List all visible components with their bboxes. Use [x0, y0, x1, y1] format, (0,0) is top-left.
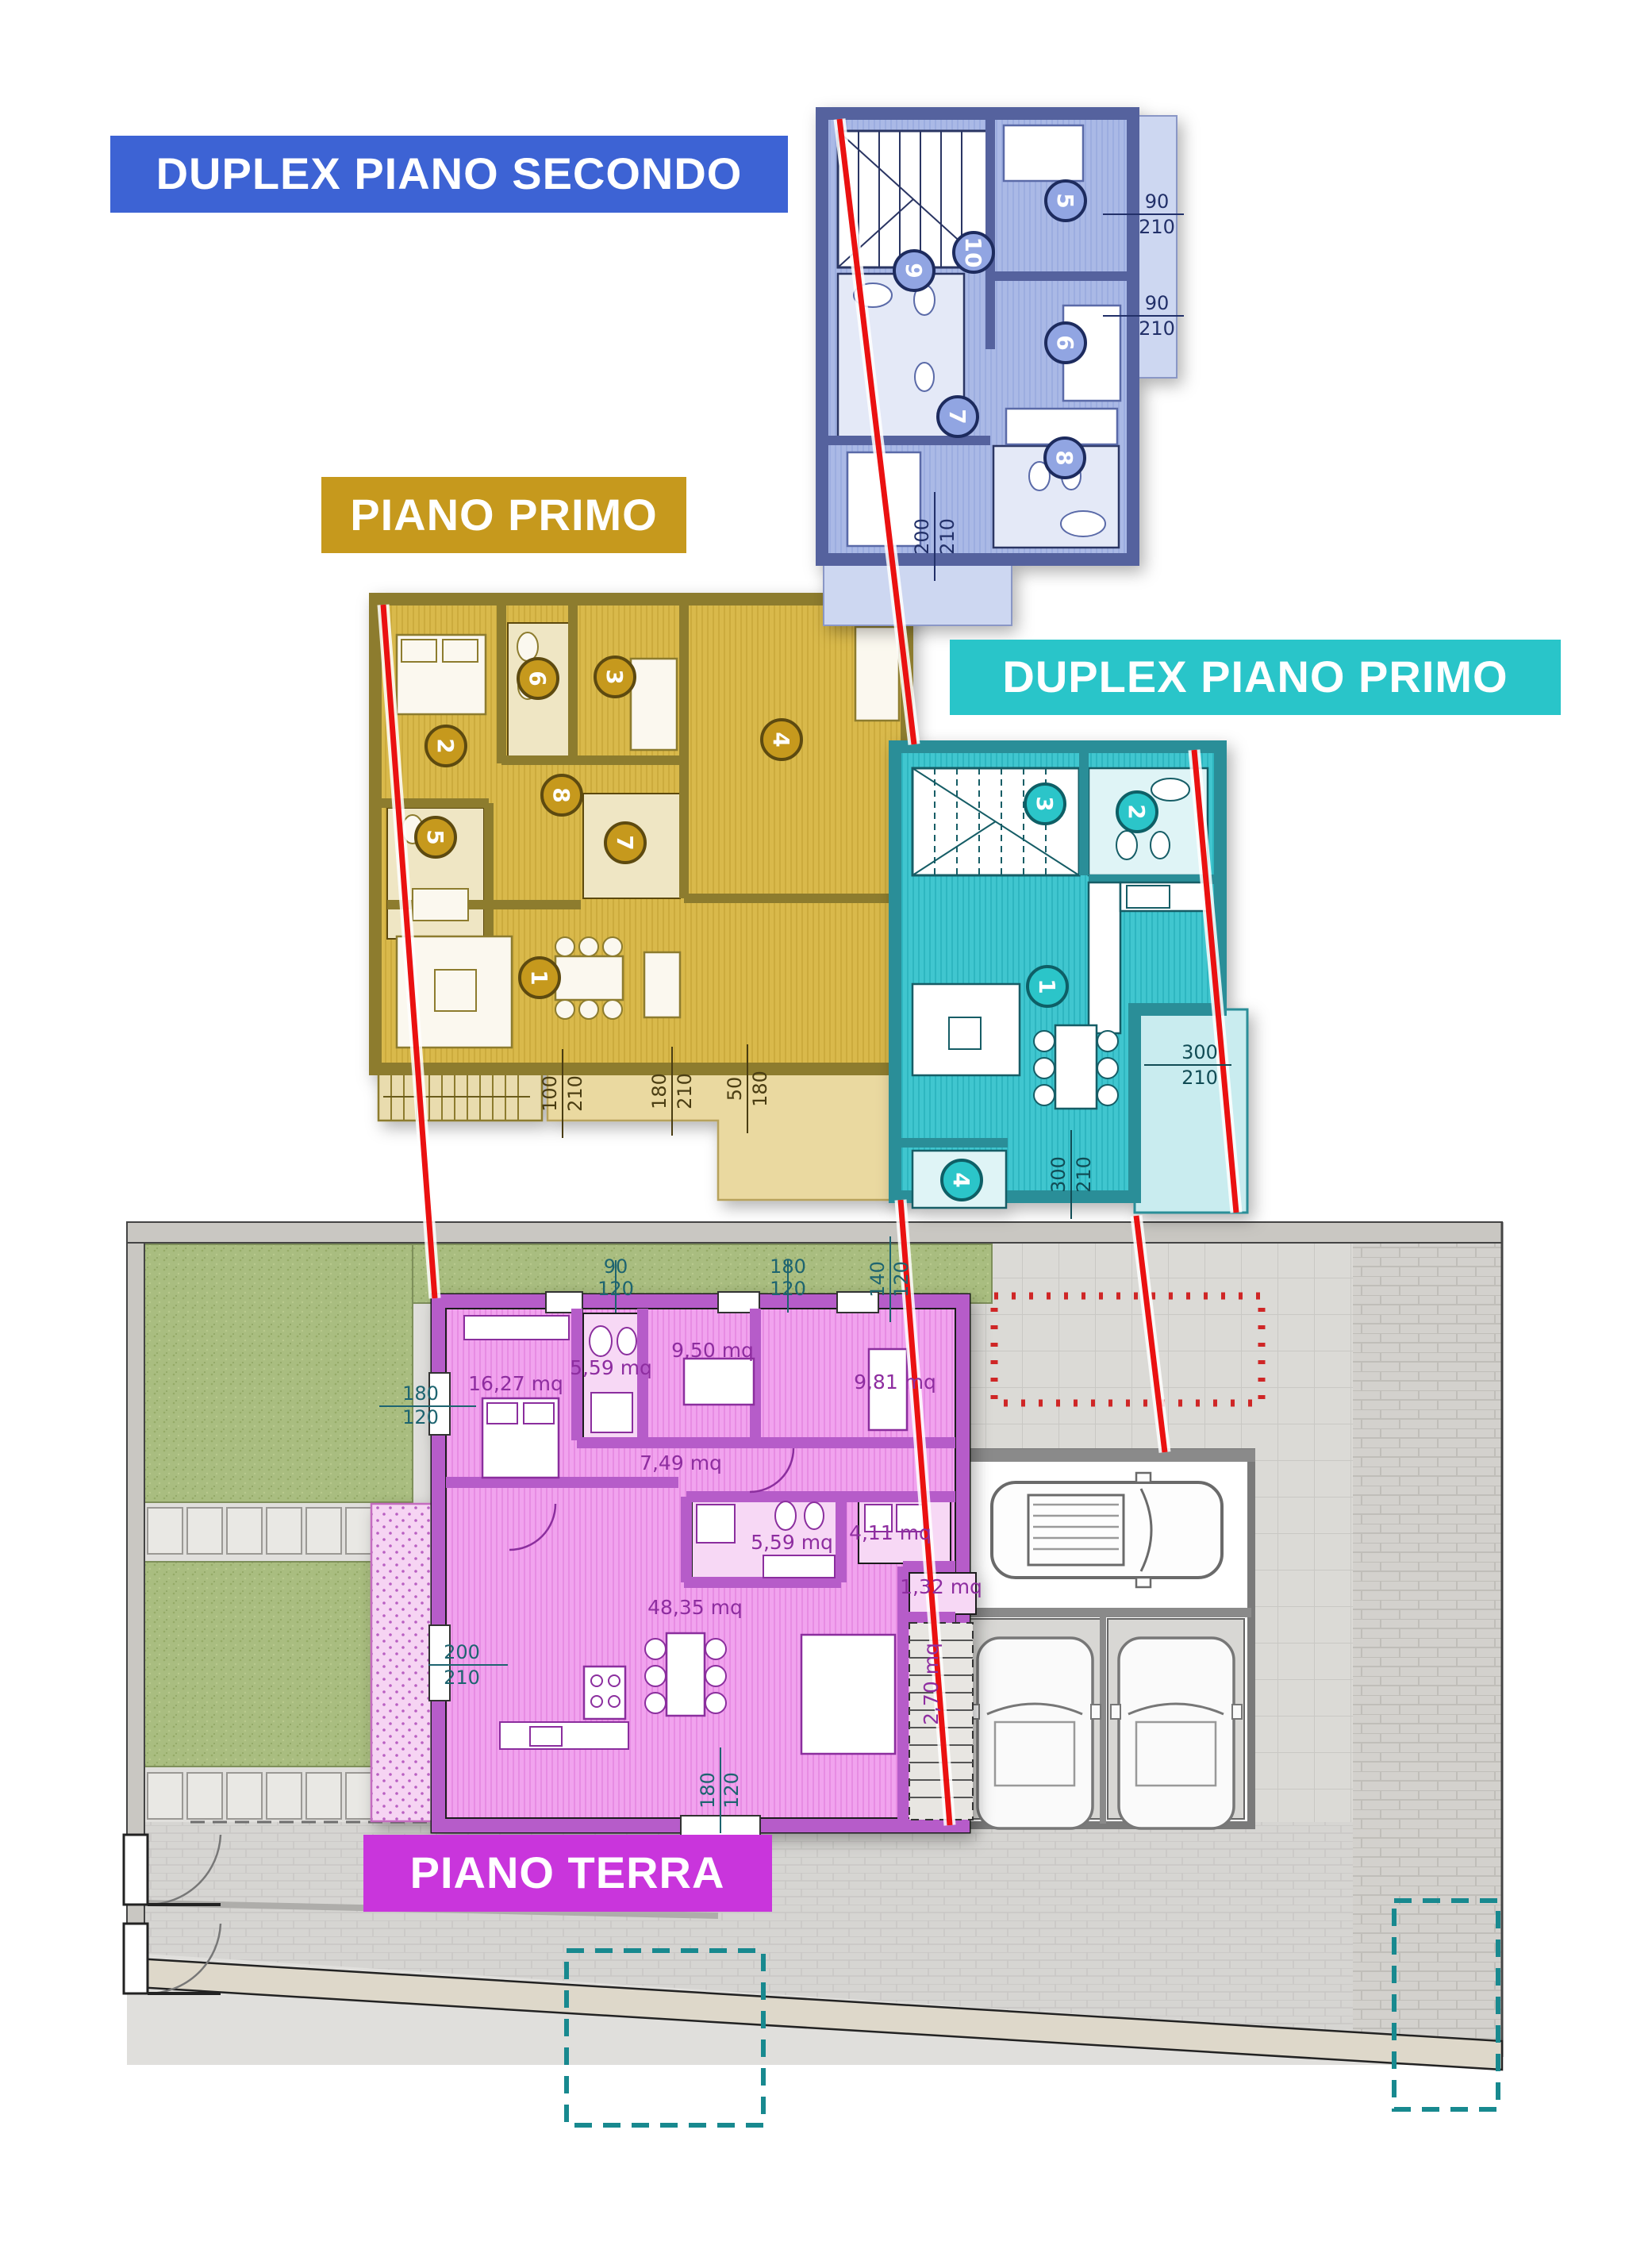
room-number-label: 10 [960, 237, 986, 268]
bidet [1151, 832, 1170, 859]
bed [855, 627, 899, 721]
room-number: 3 [1025, 784, 1065, 824]
banner-piano-primo: PIANO PRIMO [321, 477, 686, 553]
dim-value: 120 [597, 1278, 634, 1300]
dim-value: 210 [936, 518, 959, 555]
chair [645, 1666, 666, 1686]
area-label-bath2: 5,59 mq [751, 1531, 833, 1554]
shower [591, 1393, 632, 1432]
gate-opening [124, 1835, 148, 1905]
coffee-table [949, 1017, 981, 1049]
garage-roof-edge [958, 1449, 1255, 1462]
kitchen-island [644, 952, 680, 1017]
room-number: 6 [1046, 323, 1085, 363]
room-number-label: 8 [1051, 450, 1078, 465]
dim-value: 90 [604, 1255, 628, 1278]
stove [1127, 886, 1170, 908]
burner [591, 1696, 602, 1707]
area-label-bedroom3: 9,81 mq [854, 1371, 936, 1394]
burner [609, 1675, 620, 1686]
area-label-living: 48,35 mq [647, 1596, 743, 1619]
chair [1034, 1031, 1055, 1051]
dim-value: 120 [402, 1406, 439, 1428]
room-number-label: 8 [548, 787, 574, 802]
dim-value: 120 [890, 1261, 912, 1297]
room-number-label: 4 [768, 732, 794, 747]
pillow [443, 640, 478, 662]
kitchen-counter [1089, 882, 1120, 1033]
mirror [1232, 1705, 1242, 1719]
dim-value: 210 [1139, 216, 1175, 238]
garage [954, 1449, 1255, 1828]
stone [148, 1508, 182, 1554]
floorplan-poster: 5 6 7 8 9 10 1 2 3 4 5 6 7 8 1 2 3 4 90 … [0, 0, 1652, 2249]
dim-value: 210 [1139, 317, 1175, 340]
burner [609, 1696, 620, 1707]
room-number-label: 6 [524, 671, 551, 686]
chair [705, 1639, 726, 1659]
room-number: 2 [426, 726, 466, 766]
car-body [992, 1482, 1222, 1578]
dim-value: 300 [1047, 1156, 1070, 1193]
area-label-vestibule: 1,32 mq [900, 1575, 982, 1598]
chair [579, 1000, 598, 1019]
dim-value: 50 [724, 1077, 746, 1101]
mirror [1136, 1578, 1151, 1587]
room-number: 8 [542, 775, 582, 815]
stone [306, 1508, 341, 1554]
area-label-bath1: 5,59 mq [570, 1356, 652, 1379]
chair [555, 1000, 574, 1019]
room-number: 3 [595, 657, 635, 697]
dim-value: 300 [1181, 1041, 1218, 1063]
wardrobe [464, 1316, 569, 1340]
chair [1097, 1031, 1118, 1051]
chair [603, 937, 622, 956]
stone [267, 1508, 302, 1554]
sink [1061, 511, 1105, 536]
dim-value: 180 [402, 1382, 439, 1405]
area-label-hall: 7,49 mq [640, 1451, 722, 1474]
chair [1034, 1058, 1055, 1078]
burner [591, 1675, 602, 1686]
brick-paving-strip [1353, 1243, 1502, 2044]
room-number: 4 [762, 720, 801, 759]
dim-value: 140 [866, 1261, 889, 1297]
grass-area-upper [144, 1244, 413, 1502]
room-number: 1 [520, 958, 559, 998]
boundary-wall-top [127, 1222, 1502, 1243]
dining-table [555, 956, 623, 1000]
room-number: 7 [605, 823, 645, 863]
sink [530, 1727, 562, 1746]
room-number-label: 6 [1052, 335, 1078, 350]
toilet [1116, 831, 1137, 859]
banner-label: PIANO PRIMO [350, 490, 657, 540]
area-label-stairs: 2,70 mq [920, 1643, 943, 1725]
stone [187, 1773, 222, 1819]
dim-value: 180 [749, 1071, 771, 1107]
dim-value: 200 [911, 518, 933, 555]
bed [1004, 125, 1083, 181]
chair [705, 1666, 726, 1686]
room-number-label: 5 [422, 829, 448, 844]
dim-value: 90 [1145, 292, 1170, 314]
dim-value: 210 [1181, 1067, 1218, 1089]
room-number: 10 [954, 233, 993, 272]
room-number: 5 [416, 817, 455, 857]
sink [1151, 778, 1189, 801]
chair [603, 1000, 622, 1019]
floorplan-drawing: 5 6 7 8 9 10 1 2 3 4 5 6 7 8 1 2 3 4 90 … [0, 0, 1652, 2249]
stove-island [584, 1667, 625, 1719]
bed [631, 659, 677, 750]
dim-value: 210 [444, 1667, 480, 1689]
sofa [801, 1635, 895, 1754]
area-label-bedroom1: 16,27 mq [468, 1372, 563, 1395]
coffee-table [435, 970, 476, 1011]
car-front-view-icon [970, 1638, 1101, 1828]
dim-value: 90 [1145, 190, 1170, 213]
gate-opening [124, 1924, 148, 1993]
chair [645, 1639, 666, 1659]
room-number-label: 4 [948, 1172, 974, 1187]
double-sink [763, 1555, 835, 1578]
mirror [1111, 1705, 1120, 1719]
pillow [524, 1403, 554, 1424]
room-number-label: 9 [901, 263, 927, 278]
toilet [517, 632, 538, 661]
chair [1097, 1085, 1118, 1105]
kitchen-counter [500, 1722, 628, 1749]
room-number: 2 [1117, 792, 1157, 832]
toilet [590, 1326, 612, 1356]
bidet [805, 1502, 824, 1529]
car-top-view-icon [992, 1473, 1222, 1587]
room-number: 5 [1046, 181, 1085, 221]
bidet [617, 1328, 636, 1355]
banner-label: PIANO TERRA [410, 1847, 725, 1897]
stone [306, 1773, 341, 1819]
chair [705, 1693, 726, 1713]
room-number-label: 7 [612, 835, 638, 850]
chair [579, 937, 598, 956]
bidet [915, 363, 934, 391]
dim-value: 180 [697, 1772, 719, 1809]
tub [413, 889, 468, 921]
room-number: 6 [518, 659, 558, 698]
chair [1097, 1058, 1118, 1078]
room-number-label: 5 [1052, 193, 1078, 208]
banner-duplex-piano-secondo: DUPLEX PIANO SECONDO [110, 136, 788, 213]
mirror [1091, 1705, 1101, 1719]
room-number: 8 [1045, 438, 1085, 478]
dim-value: 180 [770, 1255, 806, 1278]
bed [684, 1359, 754, 1405]
room-number: 1 [1028, 967, 1067, 1006]
dim-value: 210 [564, 1075, 586, 1112]
pillow [401, 640, 436, 662]
dim-value: 100 [539, 1075, 561, 1112]
dim-value: 120 [720, 1772, 743, 1809]
shower [697, 1505, 735, 1543]
banner-piano-terra: PIANO TERRA [363, 1835, 772, 1912]
room-number-label: 2 [1124, 804, 1150, 819]
area-label-laundry: 4,11 mq [849, 1521, 932, 1544]
room-number-label: 1 [526, 970, 552, 985]
mirror [1136, 1473, 1151, 1482]
dim-value: 200 [444, 1641, 480, 1663]
banner-label: DUPLEX PIANO PRIMO [1002, 652, 1508, 702]
banner-label: DUPLEX PIANO SECONDO [156, 148, 743, 198]
stone [187, 1508, 222, 1554]
stone [227, 1773, 262, 1819]
room-number-label: 3 [1032, 796, 1058, 811]
pillow [487, 1403, 517, 1424]
dim-value: 210 [674, 1073, 696, 1109]
car-front-view-icon [1111, 1638, 1242, 1828]
garage-divider [962, 1608, 1251, 1617]
room-number-label: 2 [432, 738, 459, 753]
stone [227, 1508, 262, 1554]
room-number-label: 3 [601, 669, 628, 684]
room-number: 7 [938, 397, 978, 436]
room-number: 9 [894, 251, 934, 290]
toilet [775, 1501, 796, 1530]
dining-table [667, 1633, 705, 1716]
dim-value: 180 [648, 1073, 670, 1109]
room-number-label: 1 [1034, 978, 1060, 994]
dim-value: 120 [770, 1278, 806, 1300]
dim-value: 210 [1073, 1156, 1095, 1193]
room-number-label: 7 [944, 409, 970, 424]
area-label-bedroom2: 9,50 mq [671, 1339, 754, 1362]
chair [645, 1693, 666, 1713]
plan-piano-primo [375, 599, 907, 1200]
chair [1034, 1085, 1055, 1105]
room-number: 4 [942, 1160, 982, 1200]
stone [148, 1773, 182, 1819]
stone [267, 1773, 302, 1819]
chair [555, 937, 574, 956]
banner-duplex-piano-primo: DUPLEX PIANO PRIMO [950, 640, 1561, 715]
dining-table [1055, 1025, 1097, 1109]
